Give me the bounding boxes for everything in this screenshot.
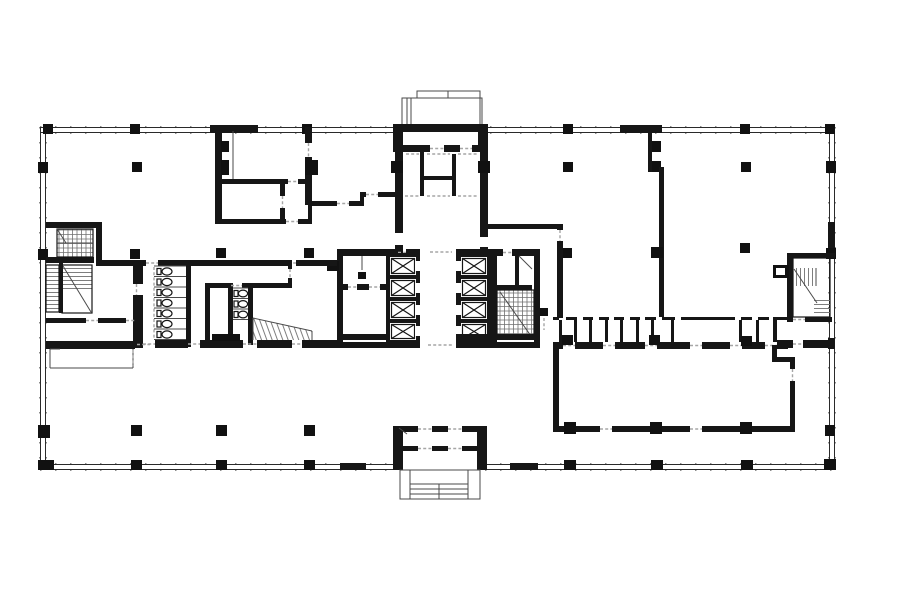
- left-wall-cavity: [41, 128, 45, 470]
- east-door-stub: [540, 308, 548, 316]
- north-vestibule: [393, 124, 488, 152]
- bottom-wall-thick-segment-right: [510, 463, 538, 470]
- elevator-shaft: [390, 301, 420, 319]
- top-wall-thick-segment-right: [620, 125, 662, 133]
- corridor-south-wall: [553, 342, 788, 349]
- core-right-wall: [534, 249, 540, 348]
- corridor-column-left: [391, 161, 403, 173]
- corridor-column-right: [478, 161, 490, 173]
- core-partition: [492, 253, 497, 344]
- duct-stub-1: [221, 141, 229, 152]
- bottom-wall-thick-segment-left: [340, 463, 366, 470]
- core-staircase: [492, 285, 534, 339]
- shaft-wall-north: [648, 127, 652, 172]
- room-wall-h224: [483, 224, 560, 229]
- stair-upper: [57, 229, 93, 257]
- corridor-partition-1: [420, 152, 424, 196]
- floor-plan-page: Office building floor plan: [0, 0, 900, 604]
- duct-stub-2: [221, 160, 229, 175]
- corridor-partition-3: [424, 176, 452, 180]
- elevator-shaft: [390, 279, 420, 297]
- stair-divider-wall: [59, 257, 63, 313]
- elevator-shaft: [390, 323, 420, 340]
- corridor-partition-2: [452, 154, 456, 196]
- small-room-partition: [515, 256, 519, 285]
- stair-lower-left: [46, 265, 59, 312]
- elevator-bank-right: [456, 253, 492, 344]
- elevator-bank-left: [386, 253, 420, 344]
- floor-plan-drawing: Office building floor plan: [0, 0, 900, 604]
- column-on-long-wall: [651, 247, 663, 258]
- elevator-shaft: [390, 257, 420, 275]
- long-wall-x660: [659, 167, 664, 317]
- duct-stub-3: [305, 160, 318, 175]
- thick-wall-block: [212, 334, 240, 341]
